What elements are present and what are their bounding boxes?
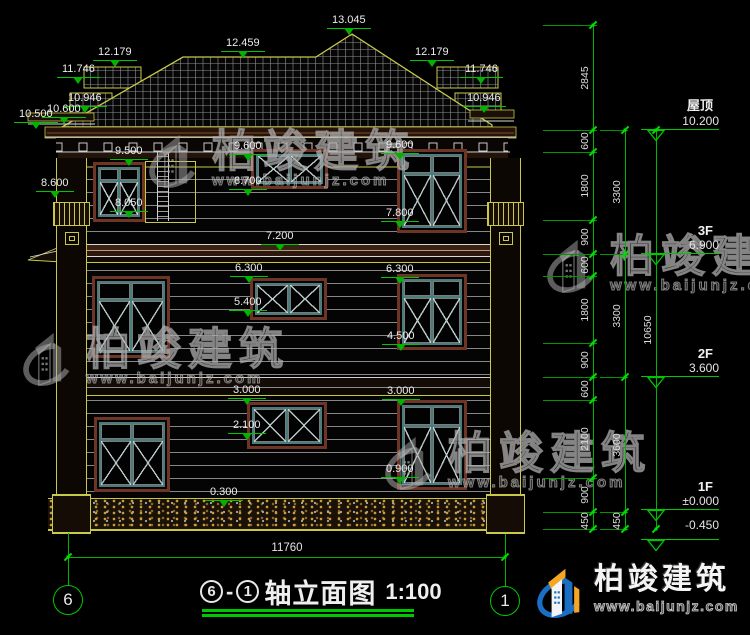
dimension-node bbox=[592, 219, 595, 222]
level-flag: 8.700 bbox=[229, 175, 267, 190]
level-value: ±0.000 bbox=[682, 494, 719, 508]
transom-pane bbox=[132, 283, 163, 299]
level-mark: 1F±0.000 bbox=[641, 478, 719, 510]
dimension-node bbox=[592, 275, 595, 278]
axis-number: 1 bbox=[500, 591, 509, 611]
dimension-value: 3300 bbox=[611, 304, 623, 327]
dimension-node bbox=[592, 399, 595, 402]
level-mark: 屋顶10.200 bbox=[641, 98, 719, 130]
window-casement bbox=[288, 409, 320, 442]
level-mark: 3F6.900 bbox=[641, 222, 719, 254]
level-mark: -0.450 bbox=[641, 508, 719, 540]
dimension-value: 1800 bbox=[579, 298, 591, 321]
dimension-node bbox=[624, 253, 627, 256]
level-flag: 9.500 bbox=[110, 145, 148, 160]
drawing-title: 6 - 1 轴立面图 1:100 bbox=[200, 572, 442, 611]
dimension-value: 1800 bbox=[579, 174, 591, 197]
downspout bbox=[157, 152, 169, 221]
level-value: -0.450 bbox=[685, 518, 719, 532]
transom-pane bbox=[404, 407, 431, 425]
column-ornament bbox=[65, 232, 79, 245]
axis-leader-right bbox=[505, 534, 506, 586]
dimension-value: 3600 bbox=[611, 433, 623, 456]
transom-pane bbox=[100, 169, 118, 180]
window-casement bbox=[291, 156, 322, 182]
casement-pane bbox=[433, 427, 460, 483]
dimension-chain-line bbox=[656, 130, 657, 529]
dimension-node bbox=[624, 511, 627, 514]
transom-pane bbox=[101, 424, 131, 439]
brand-footer: 柏竣建筑 www.baijunjz.com bbox=[536, 563, 739, 623]
dimension-node bbox=[655, 129, 658, 132]
bottom-dim-value: 11760 bbox=[242, 542, 332, 554]
title-dash: - bbox=[226, 579, 233, 605]
dimension-node bbox=[592, 528, 595, 531]
level-flag: 3.000 bbox=[382, 385, 420, 400]
axis-circle-6: 6 bbox=[53, 585, 83, 615]
pilaster-left bbox=[56, 158, 87, 532]
dimension-value: 450 bbox=[611, 512, 623, 530]
dimension-value: 600 bbox=[579, 256, 591, 274]
level-flag: 10.500 bbox=[14, 108, 58, 123]
axis-leader-left bbox=[68, 533, 69, 585]
level-flag: 11.746 bbox=[57, 63, 100, 78]
casement-pane bbox=[433, 175, 460, 226]
dimension-value: 600 bbox=[579, 380, 591, 398]
window-casement bbox=[290, 285, 321, 313]
level-name: 2F bbox=[698, 346, 713, 361]
level-triangle-icon bbox=[647, 540, 665, 551]
casement-pane bbox=[433, 298, 460, 343]
level-flag: 13.045 bbox=[327, 14, 371, 29]
dimension-node bbox=[592, 376, 595, 379]
dimension-value: 900 bbox=[579, 351, 591, 369]
dimension-node bbox=[624, 528, 627, 531]
transom-pane bbox=[433, 281, 460, 296]
level-flag: 0.300 bbox=[205, 486, 243, 501]
window-casement bbox=[133, 424, 163, 485]
title-text: 轴立面图 bbox=[264, 572, 376, 611]
level-triangle-icon bbox=[647, 130, 665, 141]
dimension-value: 2845 bbox=[579, 66, 591, 89]
window bbox=[94, 417, 170, 492]
level-name: 1F bbox=[698, 479, 713, 494]
window-casement bbox=[101, 424, 131, 485]
dimension-value: 600 bbox=[579, 132, 591, 150]
transom-pane bbox=[99, 283, 130, 299]
watermark-url: www.baijunjz.com bbox=[610, 277, 750, 294]
wall-recess-panel bbox=[145, 161, 196, 223]
dimension-value: 10650 bbox=[642, 315, 654, 344]
pilaster-right bbox=[490, 158, 521, 532]
dimension-node bbox=[624, 376, 627, 379]
floor-band-2f bbox=[62, 377, 506, 396]
transom-pane bbox=[404, 281, 431, 296]
level-flag: 12.459 bbox=[221, 37, 265, 52]
bottom-dim-line bbox=[68, 557, 505, 558]
level-flag: 8.050 bbox=[110, 197, 148, 212]
plinth-band bbox=[48, 498, 519, 531]
level-name: 屋顶 bbox=[687, 95, 713, 114]
casement-pane bbox=[99, 301, 130, 351]
level-flag: 10.946 bbox=[462, 92, 506, 107]
window-casement bbox=[132, 283, 163, 351]
title-underline bbox=[202, 614, 414, 617]
brand-name: 柏竣建筑 bbox=[594, 563, 739, 597]
dimension-node bbox=[592, 129, 595, 132]
window-casement bbox=[433, 407, 460, 483]
window-casement bbox=[433, 156, 460, 226]
wing-eaves bbox=[28, 110, 514, 124]
window-casement bbox=[433, 281, 460, 343]
dimension-node bbox=[504, 556, 507, 559]
dimension-value: 900 bbox=[579, 228, 591, 246]
dimension-node bbox=[592, 253, 595, 256]
level-value: 6.900 bbox=[689, 238, 719, 252]
level-flag: 5.400 bbox=[229, 296, 267, 311]
transom-pane bbox=[404, 156, 431, 173]
column-ornament bbox=[499, 232, 513, 245]
dimension-node bbox=[592, 511, 595, 514]
level-flag: 4.500 bbox=[382, 330, 420, 345]
transom-pane bbox=[120, 169, 138, 180]
brand-logo-icon bbox=[536, 563, 588, 623]
title-scale: 1:100 bbox=[385, 579, 441, 605]
level-flag: 9.600 bbox=[229, 140, 267, 155]
axis-circle-1: 1 bbox=[490, 586, 520, 616]
dimension-chain-line bbox=[625, 130, 626, 529]
level-flag: 3.000 bbox=[228, 384, 266, 399]
casement-pane bbox=[101, 441, 131, 485]
level-flag: 11.746 bbox=[460, 63, 503, 78]
level-mark: 2F3.600 bbox=[641, 345, 719, 377]
dimension-node bbox=[624, 129, 627, 132]
level-flag: 9.600 bbox=[381, 139, 419, 154]
window-casement bbox=[99, 283, 130, 351]
level-flag: 12.179 bbox=[410, 46, 454, 61]
title-underline bbox=[202, 609, 414, 612]
column-base bbox=[52, 494, 91, 534]
level-flag: 7.800 bbox=[381, 207, 419, 222]
casement-pane bbox=[291, 156, 322, 182]
level-value: 10.200 bbox=[682, 114, 719, 128]
dimension-node bbox=[592, 477, 595, 480]
window bbox=[92, 276, 170, 358]
brand-url: www.baijunjz.com bbox=[594, 598, 739, 614]
roof-step-bands bbox=[70, 67, 501, 117]
window-frame bbox=[99, 422, 165, 487]
level-name: 3F bbox=[698, 223, 713, 238]
dimension-node bbox=[67, 556, 70, 559]
level-flag: 0.900 bbox=[381, 463, 419, 478]
dimension-node bbox=[592, 342, 595, 345]
level-triangle-icon bbox=[647, 254, 665, 265]
axis-number: 6 bbox=[63, 590, 72, 610]
column-capital bbox=[53, 202, 90, 226]
column-capital bbox=[487, 202, 524, 226]
transom-pane bbox=[433, 156, 460, 173]
casement-pane bbox=[288, 409, 320, 442]
level-triangle-icon bbox=[647, 377, 665, 388]
transom-pane bbox=[133, 424, 163, 439]
level-flag: 6.300 bbox=[381, 263, 419, 278]
dimension-node bbox=[592, 24, 595, 27]
level-value: 3.600 bbox=[689, 361, 719, 375]
dimension-node bbox=[592, 151, 595, 154]
casement-pane bbox=[290, 285, 321, 313]
column-base bbox=[486, 494, 525, 534]
dimension-value: 2100 bbox=[579, 427, 591, 450]
dimension-value: 900 bbox=[579, 486, 591, 504]
dimension-node bbox=[655, 528, 658, 531]
cad-elevation-drawing: 11760 6 1 6 - 1 轴立面图 1:100 柏竣建筑 ww bbox=[0, 0, 750, 635]
dimension-value: 3300 bbox=[611, 180, 623, 203]
level-flag: 8.600 bbox=[36, 177, 74, 192]
level-flag: 7.200 bbox=[261, 230, 299, 245]
title-axis-left-circle: 6 bbox=[200, 580, 223, 603]
level-flag: 12.179 bbox=[93, 46, 137, 61]
level-flag: 6.300 bbox=[230, 262, 268, 277]
transom-pane bbox=[433, 407, 460, 425]
window bbox=[93, 162, 145, 222]
casement-pane bbox=[133, 441, 163, 485]
title-axis-right-circle: 1 bbox=[236, 580, 259, 603]
casement-pane bbox=[132, 301, 163, 351]
level-flag: 2.100 bbox=[228, 419, 266, 434]
dimension-value: 450 bbox=[579, 512, 591, 530]
window-frame bbox=[97, 281, 165, 353]
